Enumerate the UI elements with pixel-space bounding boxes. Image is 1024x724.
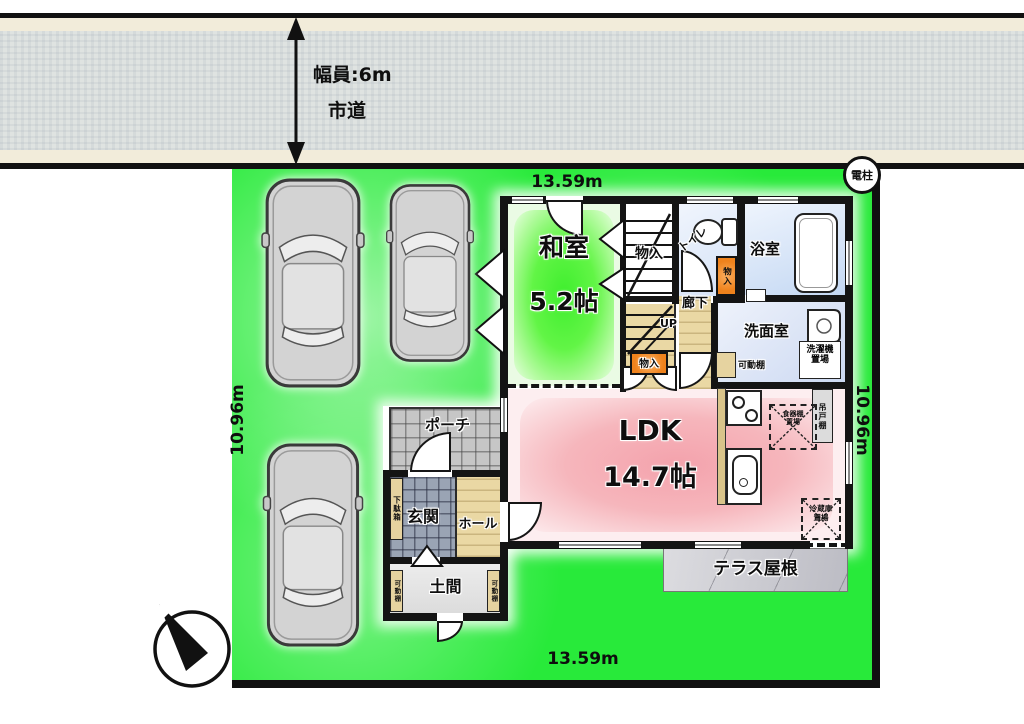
- monoire-under-label: 物入: [630, 355, 668, 370]
- terrace-roof: テラス屋根: [663, 548, 848, 592]
- stairs-up-label: UP: [660, 317, 677, 330]
- window: [757, 196, 799, 204]
- washitsu-size-label: 5.2帖: [508, 282, 620, 318]
- wall-dashed: [508, 384, 620, 388]
- wall: [765, 295, 853, 302]
- dimension-top-label: 13.59m: [512, 172, 622, 192]
- road-width-arrow-icon: [282, 16, 310, 166]
- road-texture: [0, 31, 1024, 150]
- window: [686, 196, 734, 204]
- washroom-label: 洗面室: [744, 320, 789, 341]
- dimension-left-label: 10.96m: [228, 380, 248, 460]
- road-border-top: [0, 13, 1024, 18]
- car-icon: [386, 182, 474, 364]
- window: [500, 397, 508, 433]
- stairs-diagonal: [626, 304, 674, 356]
- window: [845, 240, 853, 286]
- utility-pole-label: 電柱: [851, 167, 873, 183]
- window: [694, 541, 742, 549]
- wall: [383, 557, 412, 564]
- cupboard-area-label: 食器棚置場: [782, 410, 804, 427]
- window-shutter-icon: [474, 246, 506, 302]
- road-name-label: 市道: [328, 96, 366, 123]
- utility-pole-badge: 電柱: [843, 156, 881, 194]
- washroom-shelf-label: 可動棚: [738, 358, 765, 371]
- genkan-label: 玄関: [392, 503, 454, 527]
- wall: [713, 296, 745, 303]
- wall: [440, 557, 508, 564]
- closet-hall-side: 物入: [716, 256, 737, 296]
- wall-dashed: [805, 543, 849, 547]
- hall-label: ホール: [452, 513, 504, 532]
- ldk-name-label: LDK: [560, 414, 740, 447]
- fridge-area-label: 冷蔵庫置場: [809, 504, 833, 522]
- wall: [452, 470, 508, 477]
- car-icon: [262, 441, 364, 649]
- wall: [383, 613, 437, 621]
- car-icon: [262, 176, 364, 390]
- wall: [383, 470, 390, 621]
- wall: [463, 613, 508, 621]
- genkan-door-notch: [410, 544, 444, 566]
- floor-plan-image: 幅員:6m 市道 電柱 13.59m 13.59m 10.96m 10.96m: [0, 0, 1024, 724]
- doma-label: 土間: [398, 573, 493, 597]
- lot-border-right: [872, 168, 880, 688]
- road-width-label: 幅員:6m: [313, 60, 392, 87]
- cupboard-area: 食器棚置場: [769, 404, 817, 450]
- washitsu-name-label: 和室: [508, 228, 620, 264]
- washing-machine-area: 洗濯機置場: [799, 341, 841, 379]
- washing-machine-label: 洗濯機置場: [806, 345, 835, 366]
- hanging-cupboard-label: 吊戸棚: [817, 403, 828, 430]
- terrace-roof-label: テラス屋根: [664, 554, 847, 579]
- washroom-shelf: [716, 352, 736, 378]
- fridge-area: 冷蔵庫置場: [801, 498, 841, 540]
- bath-folding-door: [746, 289, 766, 302]
- bath-label: 浴室: [750, 238, 780, 259]
- window: [511, 196, 544, 204]
- road-surface: [0, 18, 1024, 163]
- lot-border-bottom: [232, 680, 880, 688]
- ldk-size-label: 14.7帖: [550, 455, 750, 494]
- window-shutter-icon: [474, 302, 506, 358]
- wall: [711, 382, 853, 389]
- porch-label: ポーチ: [400, 414, 495, 435]
- washbasin: [806, 308, 842, 344]
- monoire-stairs-label: 物入: [622, 243, 676, 263]
- window: [558, 541, 642, 549]
- corridor-label: 廊下: [682, 292, 708, 311]
- compass-icon: [146, 593, 238, 691]
- closet-hall-side-label: 物入: [721, 267, 733, 286]
- dimension-right-label: 10.96m: [852, 380, 872, 460]
- bathtub: [794, 213, 838, 293]
- dimension-bottom-label: 13.59m: [528, 649, 638, 669]
- wall: [500, 541, 810, 549]
